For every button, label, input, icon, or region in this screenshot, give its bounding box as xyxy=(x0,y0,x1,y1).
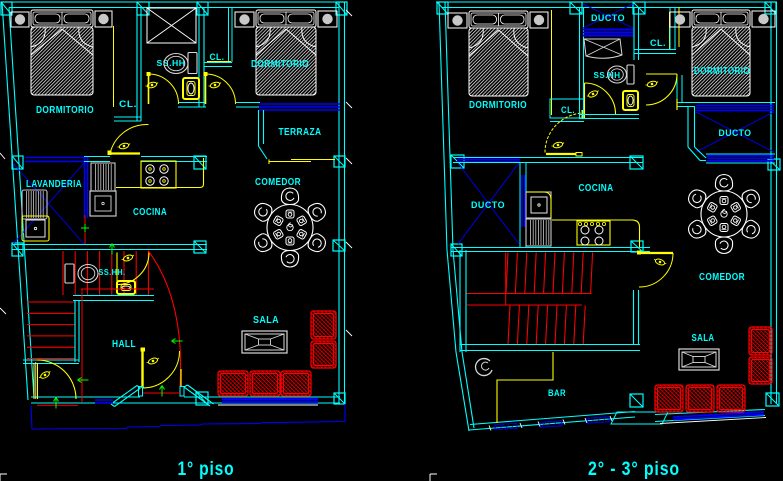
svg-text:2° - 3° piso: 2° - 3° piso xyxy=(588,459,680,480)
svg-text:COMEDOR: COMEDOR xyxy=(699,272,745,283)
svg-text:DORMITORIO: DORMITORIO xyxy=(469,100,527,111)
svg-text:COCINA: COCINA xyxy=(133,207,167,218)
svg-text:BAR: BAR xyxy=(548,388,566,398)
svg-text:LAVANDERIA: LAVANDERIA xyxy=(26,179,82,190)
svg-text:COMEDOR: COMEDOR xyxy=(255,177,301,188)
svg-text:HALL: HALL xyxy=(112,339,136,350)
svg-text:TERRAZA: TERRAZA xyxy=(279,127,322,138)
svg-text:DORMITORIO: DORMITORIO xyxy=(36,105,94,116)
svg-text:DUCTO: DUCTO xyxy=(471,200,505,210)
svg-text:DUCTO: DUCTO xyxy=(719,128,752,138)
svg-text:CL.: CL. xyxy=(119,99,137,109)
svg-text:SS.HH.: SS.HH. xyxy=(99,267,126,277)
svg-text:SS.HH: SS.HH xyxy=(157,58,186,68)
svg-text:SALA: SALA xyxy=(253,315,279,326)
svg-text:DORMITORIO: DORMITORIO xyxy=(694,66,750,77)
svg-text:DORMITORIO: DORMITORIO xyxy=(251,59,309,70)
svg-text:1° piso: 1° piso xyxy=(178,459,235,480)
svg-text:COCINA: COCINA xyxy=(579,183,614,194)
svg-text:DUCTO: DUCTO xyxy=(591,13,625,23)
svg-text:SALA: SALA xyxy=(692,333,715,344)
svg-text:CL.: CL. xyxy=(650,38,666,48)
svg-text:CL.: CL. xyxy=(210,52,225,62)
svg-text:CL.: CL. xyxy=(561,105,575,115)
